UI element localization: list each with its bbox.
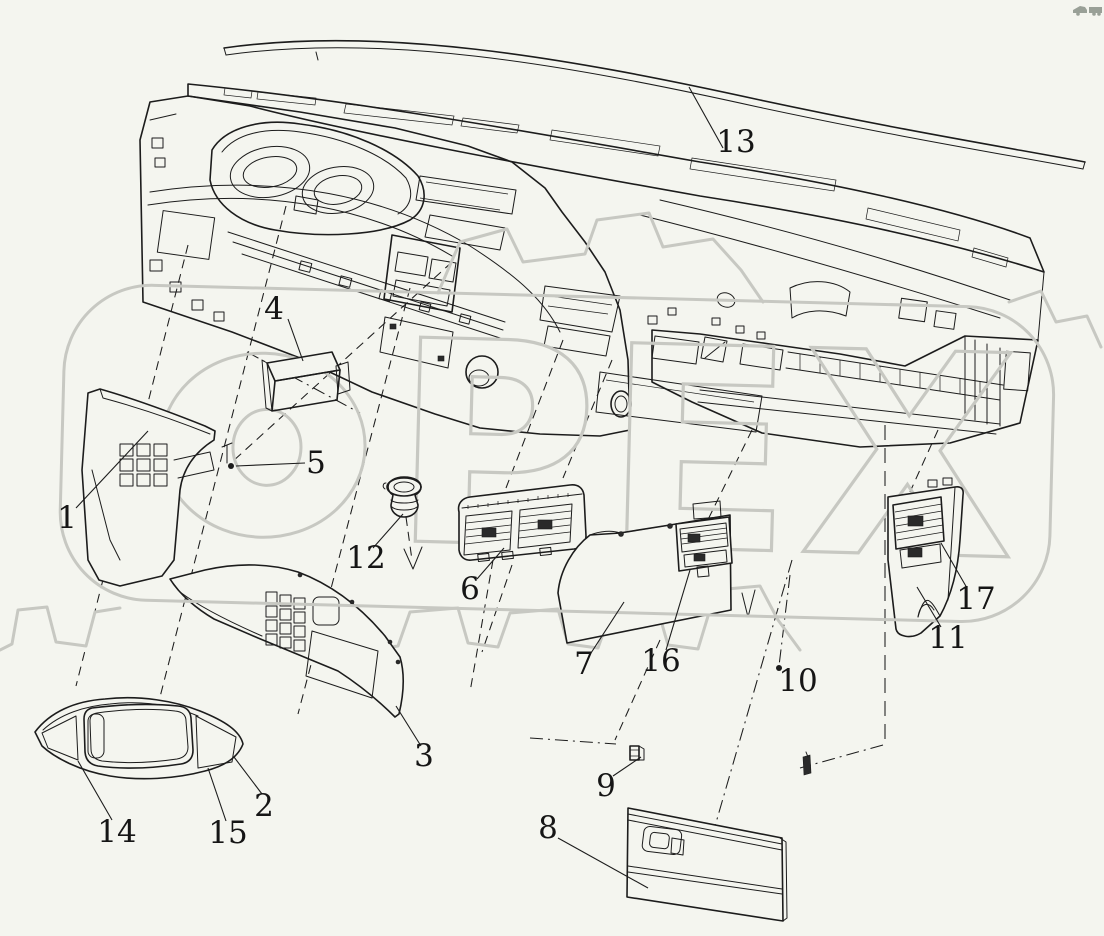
part-4-defroster-duct [262,352,350,411]
part-14-15-2-cluster-bezel [35,698,243,779]
leader-line-5 [236,463,305,466]
callout-number-1: 1 [57,500,77,536]
callout-number-2: 2 [254,788,274,824]
leader-dot-5 [228,463,234,469]
callout-number-13: 13 [716,124,755,160]
part-6-center-vents [459,485,586,562]
callout-number-10: 10 [778,663,817,699]
part-9-clip [630,746,644,760]
bezel-cluster-opening [84,704,193,768]
part-3-pillar-trim [170,565,403,717]
callout-number-4: 4 [264,291,284,327]
callout-number-11: 11 [928,620,967,656]
instrument-cluster-opening [210,122,424,234]
parts-diagram-canvas: РЕХ [0,0,1104,936]
callout-number-15: 15 [208,815,247,851]
defroster-slots [224,88,1008,267]
leader-line-9 [613,757,641,776]
callout-number-14: 14 [97,814,136,850]
diagram-page: РЕХ [0,0,1104,936]
callout-number-17: 17 [956,581,995,617]
callout-number-3: 3 [414,738,434,774]
callout-number-5: 5 [306,445,326,481]
callout-number-9: 9 [596,768,616,804]
part-10-clip [803,752,811,775]
part-8-glove-box-door [627,808,787,921]
callout-number-12: 12 [346,540,385,576]
left-end-details [150,114,224,321]
leader-line-15 [208,768,226,821]
part-12-cup-holder [383,477,421,517]
callout-number-8: 8 [538,810,558,846]
truck-icon [1073,6,1102,16]
part-1-left-end-cover [82,389,215,586]
callout-number-16: 16 [641,643,680,679]
callout-number-6: 6 [460,571,480,607]
callout-number-7: 7 [574,646,594,682]
part-5-screw [222,443,232,463]
